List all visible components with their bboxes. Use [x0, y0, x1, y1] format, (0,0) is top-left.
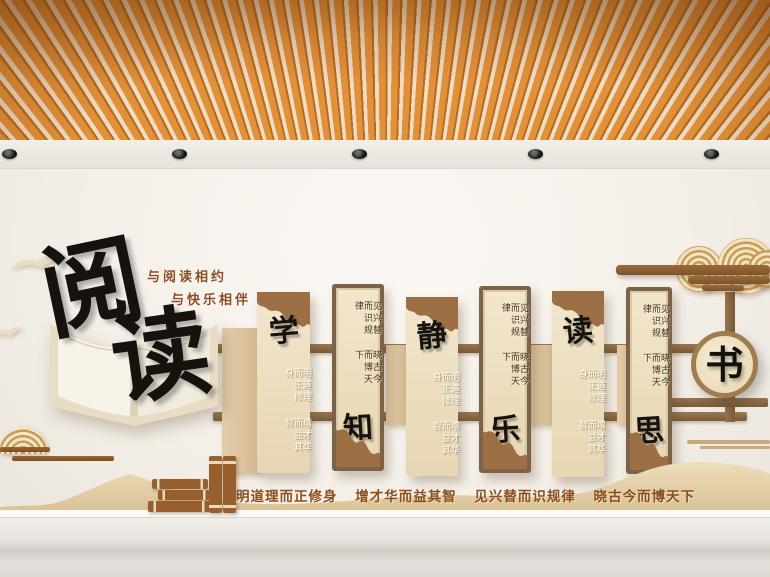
stacked-book-icon — [158, 490, 210, 500]
panel-si: 见兴替而识规律 晓古今而博天下 思 — [626, 287, 672, 474]
verse-column-right: 明道理而正修身 — [552, 369, 604, 415]
standing-book-icon — [209, 456, 222, 513]
verse-column-right: 明道理而正修身 — [406, 372, 458, 416]
panel-verse: 明道理而正修身 增才华而益其智 — [552, 369, 604, 466]
panel-char: 静 — [416, 321, 449, 354]
standing-book-icon — [223, 456, 236, 513]
bottom-slogan: 明道理而正修身 增才华而益其智 见兴替而识规律 晓古今而博天下 — [230, 485, 680, 505]
tagline-line2: 与快乐相伴 — [171, 289, 251, 308]
slogan-phrase: 明道理而正修身 — [236, 489, 338, 505]
recessed-light-icon — [704, 149, 719, 159]
verse-column-left: 晓古今而博天下 — [630, 353, 668, 397]
panel-xue: 学 明道理而正修身 增才华而益其智 — [257, 292, 310, 473]
panel-char: 读 — [562, 316, 595, 349]
panel-le: 见兴替而识规律 晓古今而博天下 乐 — [479, 286, 531, 473]
orange-slat-ceiling — [0, 0, 770, 140]
slogan-phrase: 增才华而益其智 — [355, 489, 457, 505]
floor — [0, 549, 770, 577]
bench-top — [0, 510, 770, 518]
book-medallion: 书 — [691, 331, 758, 398]
reading-culture-wall-render: 阅 读 与阅读相约 与快乐相伴 学 明道理而正修身 增才华而益其智 见兴替而识规… — [0, 0, 770, 577]
verse-column-right: 见兴替而识规律 — [630, 304, 668, 348]
panel-verse: 明道理而正修身 增才华而益其智 — [257, 368, 310, 462]
tagline-line1: 与阅读相约 — [147, 266, 227, 285]
verse-column-left: 晓古今而博天下 — [336, 350, 380, 394]
cloud-line-icon — [700, 446, 770, 449]
panel-verse: 见兴替而识规律 晓古今而博天下 — [483, 303, 527, 396]
panel-verse: 见兴替而识规律 晓古今而博天下 — [336, 301, 380, 394]
cloud-shelf — [688, 276, 770, 284]
cloud-shelf — [702, 285, 744, 291]
panel-verse: 明道理而正修身 增才华而益其智 — [406, 372, 458, 465]
cloud-line-icon — [687, 440, 770, 444]
recessed-light-icon — [172, 149, 187, 159]
wood-plank — [386, 345, 406, 425]
panel-char: 学 — [267, 316, 300, 349]
flying-bird-icon — [0, 325, 22, 341]
panel-jing: 静 明道理而正修身 增才华而益其智 — [406, 297, 458, 476]
verse-column-right: 明道理而正修身 — [257, 368, 310, 413]
stacked-book-icon — [152, 479, 208, 489]
wood-plank — [222, 328, 262, 474]
cloud-shelf — [616, 265, 770, 275]
recessed-light-icon — [2, 149, 17, 159]
slogan-phrase: 晓古今而博天下 — [594, 489, 696, 505]
panel-verse: 见兴替而识规律 晓古今而博天下 — [630, 304, 668, 397]
stacked-book-icon — [148, 501, 210, 512]
recessed-light-icon — [352, 149, 367, 159]
lattice-bar-horizontal — [668, 398, 768, 407]
medallion-char: 书 — [705, 346, 743, 384]
panel-zhi: 见兴替而识规律 晓古今而博天下 知 — [332, 284, 384, 471]
shelf-stick — [0, 447, 50, 452]
verse-column-left: 晓古今而博天下 — [483, 352, 527, 396]
bench-front — [0, 518, 770, 549]
panel-du: 读 明道理而正修身 增才华而益其智 — [552, 291, 604, 477]
headline-char-du: 读 — [106, 302, 217, 413]
verse-column-right: 见兴替而识规律 — [483, 303, 527, 347]
ceiling-soffit — [0, 140, 770, 169]
verse-column-right: 见兴替而识规律 — [336, 301, 380, 345]
recessed-light-icon — [528, 149, 543, 159]
slogan-phrase: 见兴替而识规律 — [474, 489, 576, 505]
